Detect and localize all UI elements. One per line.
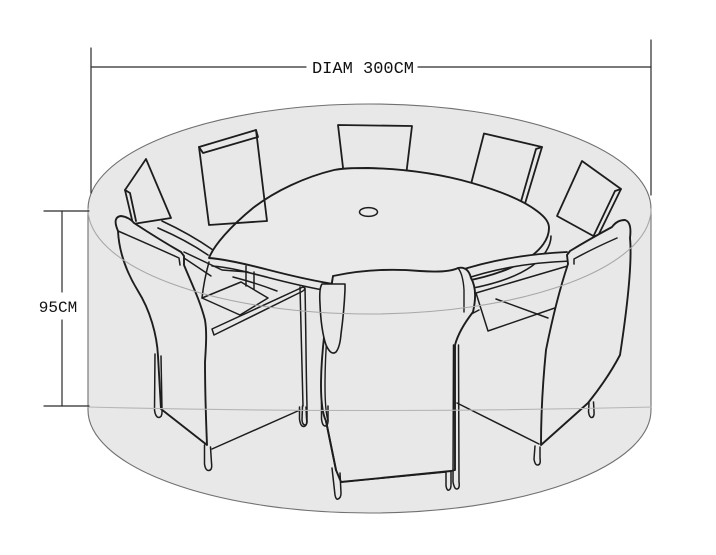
svg-text:95CM: 95CM (39, 299, 77, 317)
svg-text:DIAM 300CM: DIAM 300CM (312, 60, 414, 79)
